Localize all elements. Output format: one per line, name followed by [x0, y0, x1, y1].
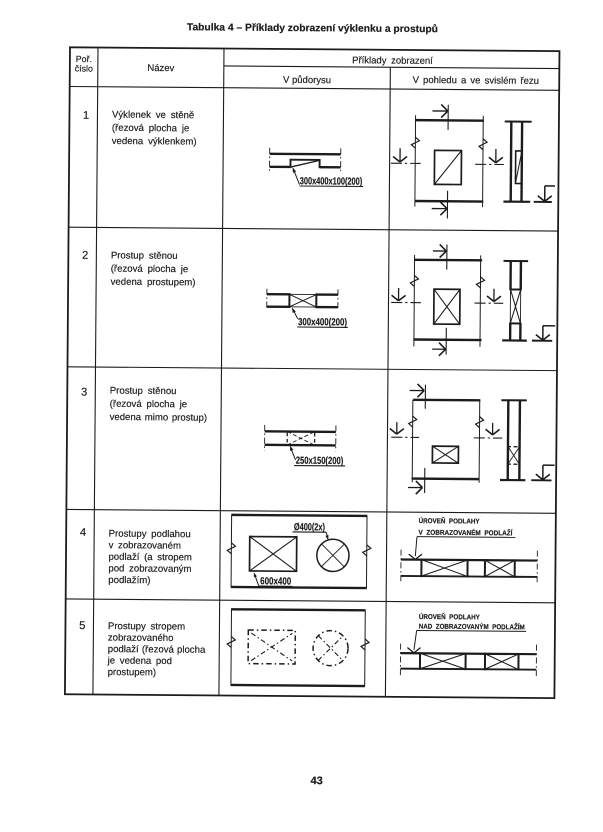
svg-text:Prostup stěnou: Prostup stěnou: [111, 250, 178, 262]
svg-text:je vedena pod: je vedena pod: [107, 656, 172, 668]
svg-text:V pohledu a ve svislém řezu: V pohledu a ve svislém řezu: [413, 75, 539, 87]
svg-text:vedena prostupem): vedena prostupem): [111, 277, 196, 289]
svg-text:ÚROVEŇ PODLAHY: ÚROVEŇ PODLAHY: [419, 612, 480, 621]
svg-text:Tabulka 4 – Příklady zobrazení: Tabulka 4 – Příklady zobrazení výklenku …: [187, 21, 438, 35]
svg-text:(řezová plocha je: (řezová plocha je: [112, 123, 190, 135]
svg-text:Výklenek ve stěně: Výklenek ve stěně: [112, 110, 194, 122]
svg-text:v zobrazovaném: v zobrazovaném: [109, 540, 181, 552]
svg-text:Příklady zobrazení: Příklady zobrazení: [352, 55, 433, 67]
svg-text:ÚROVEŇ PODLAHY: ÚROVEŇ PODLAHY: [419, 516, 480, 525]
svg-text:pod zobrazovaným: pod zobrazovaným: [108, 563, 191, 575]
svg-text:4: 4: [80, 527, 86, 539]
svg-text:podlažím): podlažím): [108, 575, 150, 586]
svg-text:podlaží (a stropem: podlaží (a stropem: [108, 552, 192, 564]
svg-text:1: 1: [83, 110, 89, 122]
svg-text:(řezová plocha je: (řezová plocha je: [110, 399, 188, 411]
svg-text:Prostupy stropem: Prostupy stropem: [108, 621, 185, 633]
svg-text:Prostup stěnou: Prostup stěnou: [110, 386, 177, 398]
svg-text:V půdorysu: V půdorysu: [283, 75, 331, 86]
svg-text:2: 2: [82, 250, 88, 262]
svg-text:5: 5: [79, 620, 85, 632]
svg-text:zobrazovaného: zobrazovaného: [108, 633, 174, 645]
svg-text:43: 43: [310, 775, 322, 787]
svg-text:3: 3: [81, 386, 87, 398]
svg-text:číslo: číslo: [75, 63, 93, 73]
svg-text:(řezová plocha je: (řezová plocha je: [111, 264, 189, 276]
svg-text:prostupem): prostupem): [108, 667, 157, 678]
svg-text:vedena mimo prostup): vedena mimo prostup): [110, 412, 208, 424]
svg-text:vedena výklenkem): vedena výklenkem): [112, 136, 197, 148]
svg-text:Název: Název: [147, 63, 174, 74]
svg-text:podlaží (řezová plocha: podlaží (řezová plocha: [108, 644, 206, 656]
svg-text:Prostupy podlahou: Prostupy podlahou: [109, 529, 191, 541]
